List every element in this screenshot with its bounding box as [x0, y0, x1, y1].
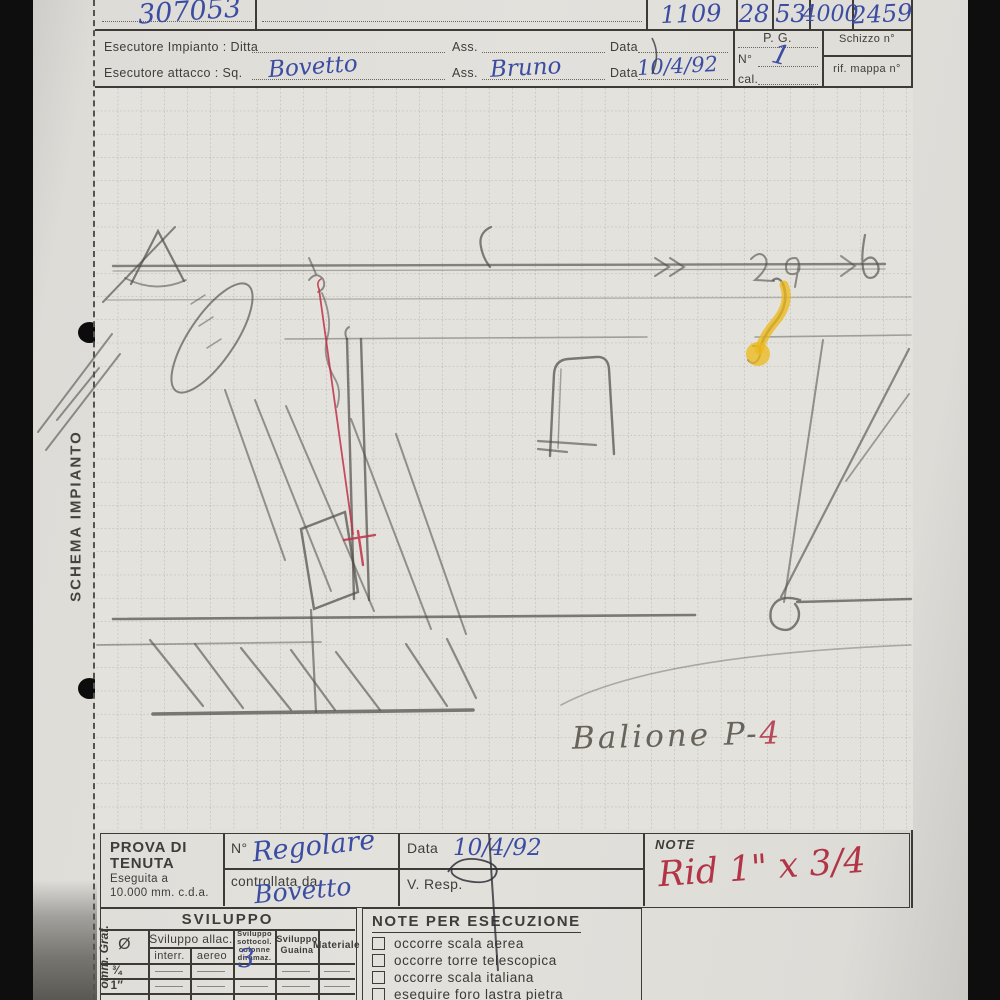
- divider: [100, 993, 355, 995]
- code-cell: 4000: [810, 0, 851, 28]
- divider: [223, 868, 643, 870]
- divider: [100, 963, 355, 965]
- prova-sub-2: 10.000 mm. c.d.a.: [110, 887, 209, 899]
- col-interr: interr.: [149, 950, 190, 962]
- divider: [100, 929, 355, 931]
- divider: [643, 833, 645, 906]
- divider: [255, 0, 257, 29]
- dotted-rule: [482, 52, 605, 53]
- prova-sub-1: Eseguita a: [110, 873, 168, 885]
- checkbox-icon: [372, 988, 385, 1000]
- checkbox-row: occorre scala italiana: [372, 970, 534, 985]
- cell-dash: [282, 986, 310, 987]
- code-cell: 2459: [853, 0, 910, 29]
- cell-dash: [197, 986, 225, 987]
- divider: [223, 833, 225, 906]
- code-cell: 28: [737, 0, 771, 28]
- row-diam-1: 1″: [102, 980, 132, 992]
- numero-label: N°: [738, 52, 752, 66]
- data-label: Data: [610, 40, 638, 54]
- esecuzione-title: NOTE PER ESECUZIONE: [372, 913, 581, 933]
- dotted-rule: [262, 21, 642, 22]
- sviluppo-handwritten-3: 3: [238, 944, 255, 974]
- row-diam-34: ¾: [102, 965, 132, 977]
- cell-dash: [155, 971, 183, 972]
- prova-title-2: TENUTA: [110, 855, 175, 872]
- divider: [148, 947, 234, 949]
- ass-label: Ass.: [452, 40, 478, 54]
- prova-data-handwritten: 10/4/92: [453, 835, 542, 861]
- schema-impianto-vertical-title: SCHEMA IMPIANTO: [68, 430, 85, 602]
- esecutore-attacco-label: Esecutore attacco : Sq.: [104, 66, 242, 80]
- sketch-annotation: Balione P-4: [572, 715, 783, 756]
- esecutore-impianto-label: Esecutore Impianto : Ditta: [104, 40, 258, 54]
- cell-dash: [197, 971, 225, 972]
- col-aereo: aereo: [191, 950, 233, 962]
- sketch-canvas: [95, 88, 913, 830]
- annotation-red-text: 4: [759, 715, 783, 752]
- checkbox-icon: [372, 971, 385, 984]
- vresp-label: V. Resp.: [407, 876, 463, 892]
- prova-n-label: N°: [231, 840, 248, 856]
- cell-dash: [324, 986, 350, 987]
- col-allac: Sviluppo allac.: [149, 932, 233, 946]
- checkbox-icon: [372, 954, 385, 967]
- ass-label: Ass.: [452, 66, 478, 80]
- yellow-highlighter-blob: [746, 342, 770, 366]
- checkbox-label: occorre torre telescopica: [394, 953, 557, 968]
- note-label: NOTE: [655, 837, 695, 852]
- data-label: Data: [610, 66, 638, 80]
- checkbox-row: eseguire foro lastra pietra: [372, 987, 563, 1000]
- col-guaina: Sviluppo Guaina: [277, 934, 317, 956]
- checkbox-label: eseguire foro lastra pietra: [394, 987, 563, 1000]
- schizzo-label: Schizzo n°: [824, 33, 910, 45]
- cell-dash: [240, 986, 268, 987]
- checkbox-label: occorre scala italiana: [394, 970, 534, 985]
- prova-title-1: PROVA DI: [110, 839, 187, 856]
- cell-dash: [324, 971, 350, 972]
- annotation-pencil-text: Balione P-: [572, 716, 760, 757]
- dotted-rule: [758, 66, 818, 67]
- dotted-rule: [758, 84, 818, 85]
- col-diametro: Ø: [102, 936, 147, 954]
- divider: [100, 978, 355, 980]
- data-handwritten: 10/4/92: [636, 52, 718, 80]
- checkbox-icon: [372, 937, 385, 950]
- checkbox-row: occorre torre telescopica: [372, 953, 557, 968]
- prova-data-label: Data: [407, 840, 438, 856]
- assistente-handwritten: Bruno: [489, 53, 562, 83]
- col-materiale: Materiale: [319, 940, 354, 951]
- scanned-document-page: SCHEMA IMPIANTO omm. Graf. 307053 1109 2…: [0, 0, 1000, 1000]
- divider: [398, 833, 400, 906]
- divider: [822, 55, 913, 57]
- scan-shadow: [33, 880, 97, 1000]
- rif-mappa-label: rif. mappa n°: [824, 63, 910, 75]
- cell-dash: [282, 971, 310, 972]
- checkbox-label: occorre scala aerea: [394, 936, 524, 951]
- cal-label: cal.: [738, 72, 758, 86]
- checkbox-row: occorre scala aerea: [372, 936, 524, 951]
- code-cell: 1109: [648, 0, 735, 29]
- cell-dash: [155, 986, 183, 987]
- sviluppo-title: SVILUPPO: [100, 911, 355, 928]
